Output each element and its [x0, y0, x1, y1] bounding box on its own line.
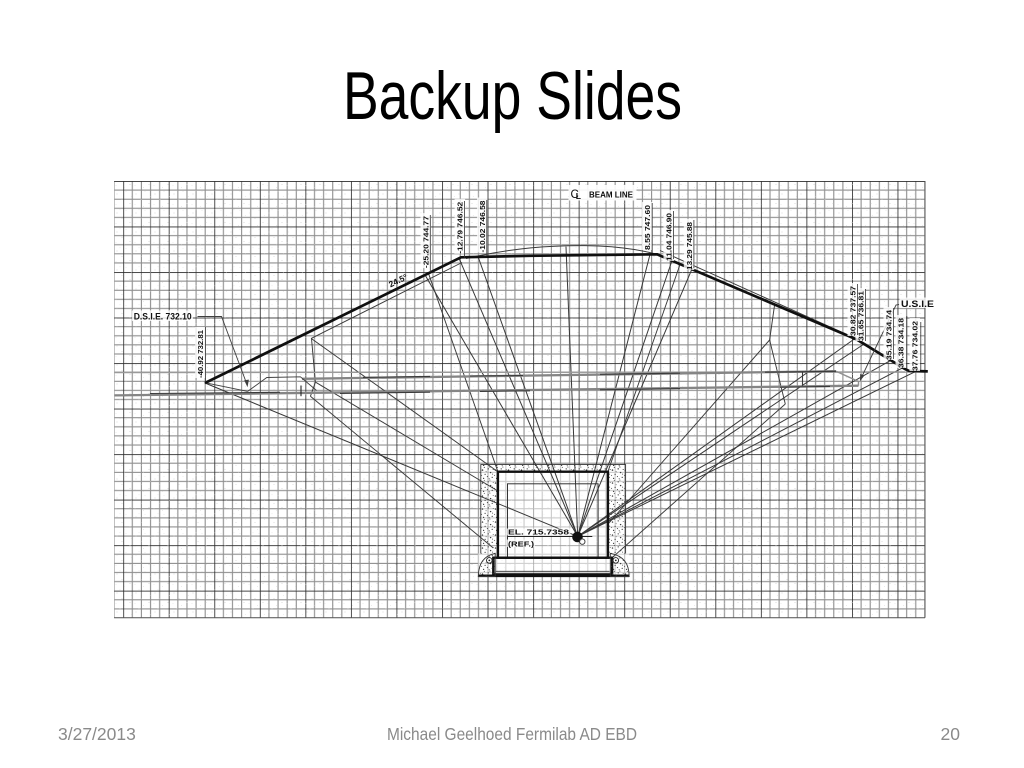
svg-text:L: L	[576, 191, 581, 201]
svg-text:11.04 746.90: 11.04 746.90	[665, 213, 674, 261]
svg-text:Michael Geelhoed Fermilab AD E: Michael Geelhoed Fermilab AD EBD	[387, 724, 637, 744]
svg-text:35.19 734.74: 35.19 734.74	[885, 309, 894, 360]
svg-text:-10.02 746.58: -10.02 746.58	[478, 201, 487, 253]
svg-text:U.S.I.E: U.S.I.E	[901, 299, 934, 309]
svg-text:37.76 734.02: 37.76 734.02	[911, 321, 920, 371]
svg-text:-40.92 732.81: -40.92 732.81	[196, 330, 205, 378]
svg-text:8.55 747.60: 8.55 747.60	[643, 205, 652, 250]
svg-text:3/27/2013: 3/27/2013	[58, 724, 136, 744]
svg-text:13.29 745.88: 13.29 745.88	[685, 222, 694, 270]
svg-text:Backup Slides: Backup Slides	[343, 58, 682, 134]
svg-text:-12.79 746.52: -12.79 746.52	[456, 202, 465, 254]
svg-text:-25.20 744.77: -25.20 744.77	[422, 216, 431, 268]
svg-text:BEAM LINE: BEAM LINE	[589, 190, 633, 200]
svg-text:36.38 734.18: 36.38 734.18	[897, 318, 906, 368]
svg-text:(REF.): (REF.)	[508, 540, 535, 549]
svg-text:EL. 715.7358: EL. 715.7358	[508, 528, 569, 537]
svg-text:D.S.I.E. 732.10: D.S.I.E. 732.10	[134, 312, 192, 322]
svg-text:20: 20	[941, 724, 961, 744]
